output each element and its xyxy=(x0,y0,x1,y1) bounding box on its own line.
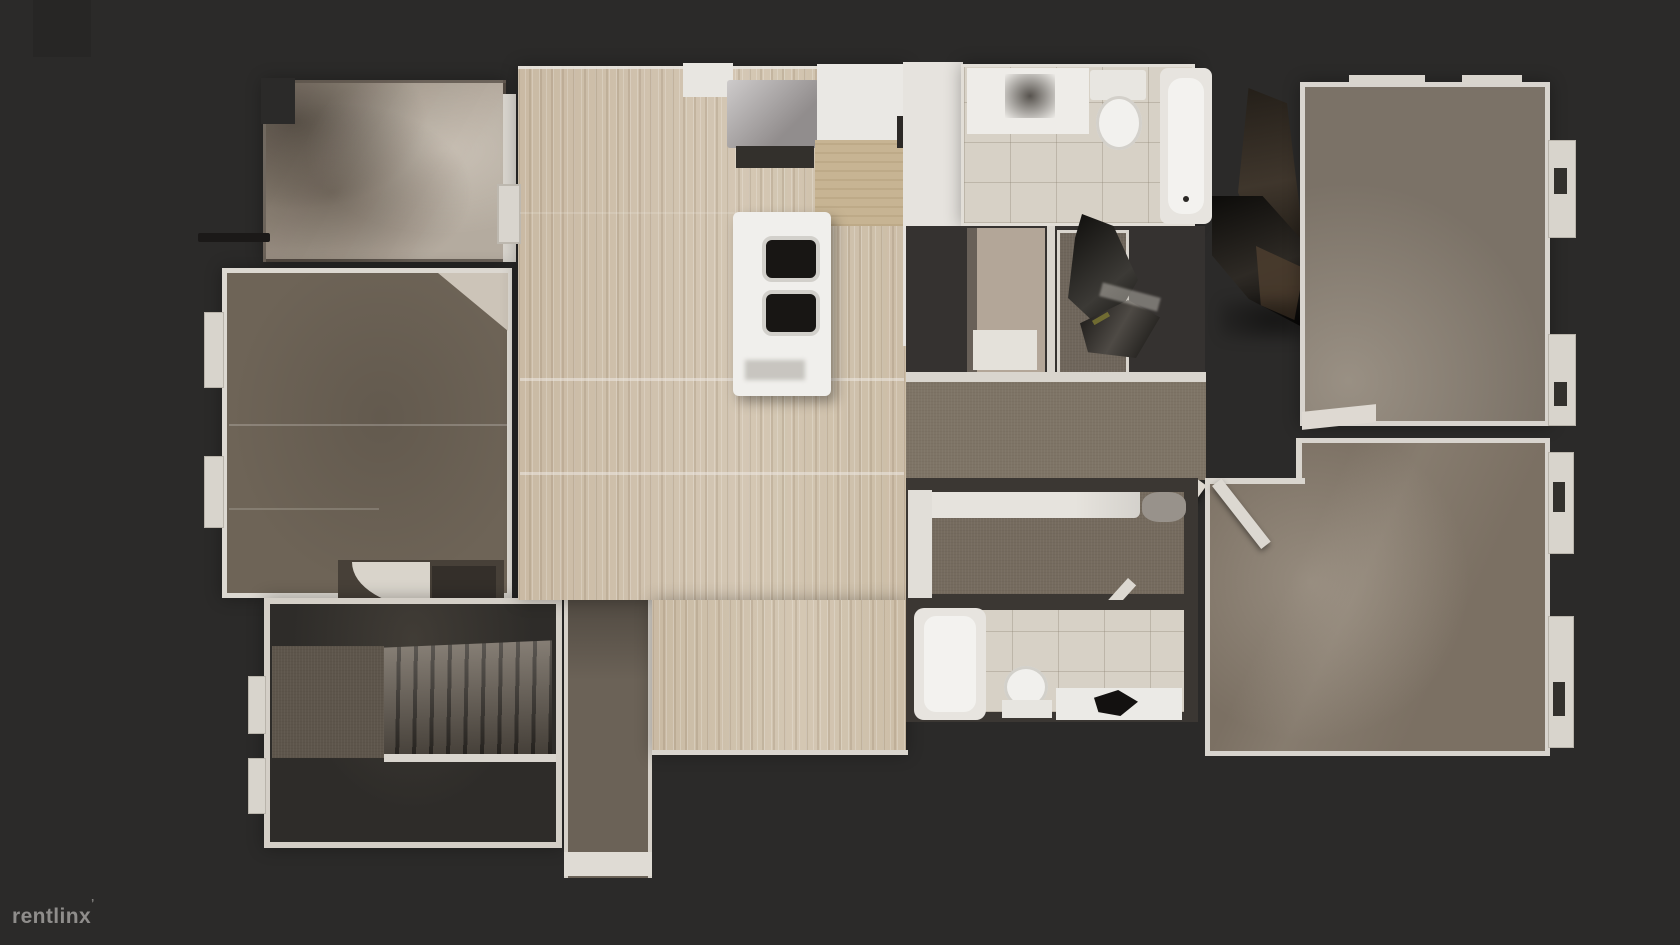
top-wall-tab xyxy=(1462,75,1522,84)
tub-drain xyxy=(1183,196,1189,202)
kitchen-counter-right xyxy=(817,64,907,142)
porch-ledge xyxy=(198,233,270,242)
island-smudge xyxy=(745,360,805,380)
room-garage xyxy=(263,80,506,262)
room-bedroom-left xyxy=(222,268,512,598)
shadow-patch xyxy=(33,0,91,57)
rentlinx-watermark: rentlinxʼ xyxy=(12,905,95,929)
fridge-recess xyxy=(736,146,814,168)
stair-landing-strip xyxy=(564,596,652,878)
room-bedroom-right-top xyxy=(1300,82,1550,426)
island-sink-basin xyxy=(762,236,820,282)
window-notch xyxy=(1554,382,1567,406)
pillow-gray xyxy=(1142,492,1186,522)
island-sink-basin xyxy=(762,290,820,336)
staircase xyxy=(384,640,552,761)
garage-corner-notch xyxy=(261,78,295,124)
utility-zone xyxy=(906,226,1205,378)
room-bedroom-right-bottom xyxy=(1205,438,1550,756)
entry-carpet xyxy=(272,646,384,758)
floor-seam xyxy=(520,212,760,214)
front-door-sill xyxy=(564,852,652,876)
window-bay xyxy=(204,312,224,388)
notch-wall-v xyxy=(1296,438,1302,484)
window-bay xyxy=(248,676,266,734)
watermark-brand: rentlinx xyxy=(12,905,91,928)
floorplan-scan: rentlinxʼ xyxy=(0,0,1680,945)
bathtub-top-inner xyxy=(1168,78,1204,214)
floor-seam xyxy=(520,378,904,381)
doorway-left-bedroom xyxy=(497,184,521,244)
stair-threshold xyxy=(384,754,556,762)
carpet-seam xyxy=(229,508,379,510)
floor-seam xyxy=(520,472,904,475)
bathtub-bottom-inner xyxy=(924,616,976,712)
window-notch xyxy=(1553,482,1565,512)
window-bay xyxy=(248,758,266,814)
window-notch xyxy=(1554,168,1567,194)
wardrobe-white xyxy=(908,490,932,598)
utility-divider-wall xyxy=(1047,226,1055,376)
bed-white-cover xyxy=(922,492,1140,518)
living-kitchen-lower xyxy=(652,600,906,754)
watermark-trademark: ʼ xyxy=(91,898,94,910)
window-bay xyxy=(1548,334,1576,426)
vanity-sink-smudge xyxy=(1005,74,1055,118)
wood-bottom-trim xyxy=(652,750,908,755)
refrigerator xyxy=(727,80,819,148)
hallway-top-wall xyxy=(906,372,1206,382)
counter-top-small xyxy=(683,63,733,97)
window-bay xyxy=(204,456,224,528)
top-wall-tab xyxy=(1349,75,1425,84)
carpet-seam xyxy=(229,424,507,426)
room-hallway xyxy=(906,382,1206,480)
toilet-bowl xyxy=(1096,96,1142,150)
toilet-tank xyxy=(1002,700,1052,718)
washer-appliance xyxy=(973,330,1037,370)
window-notch xyxy=(1553,682,1565,716)
